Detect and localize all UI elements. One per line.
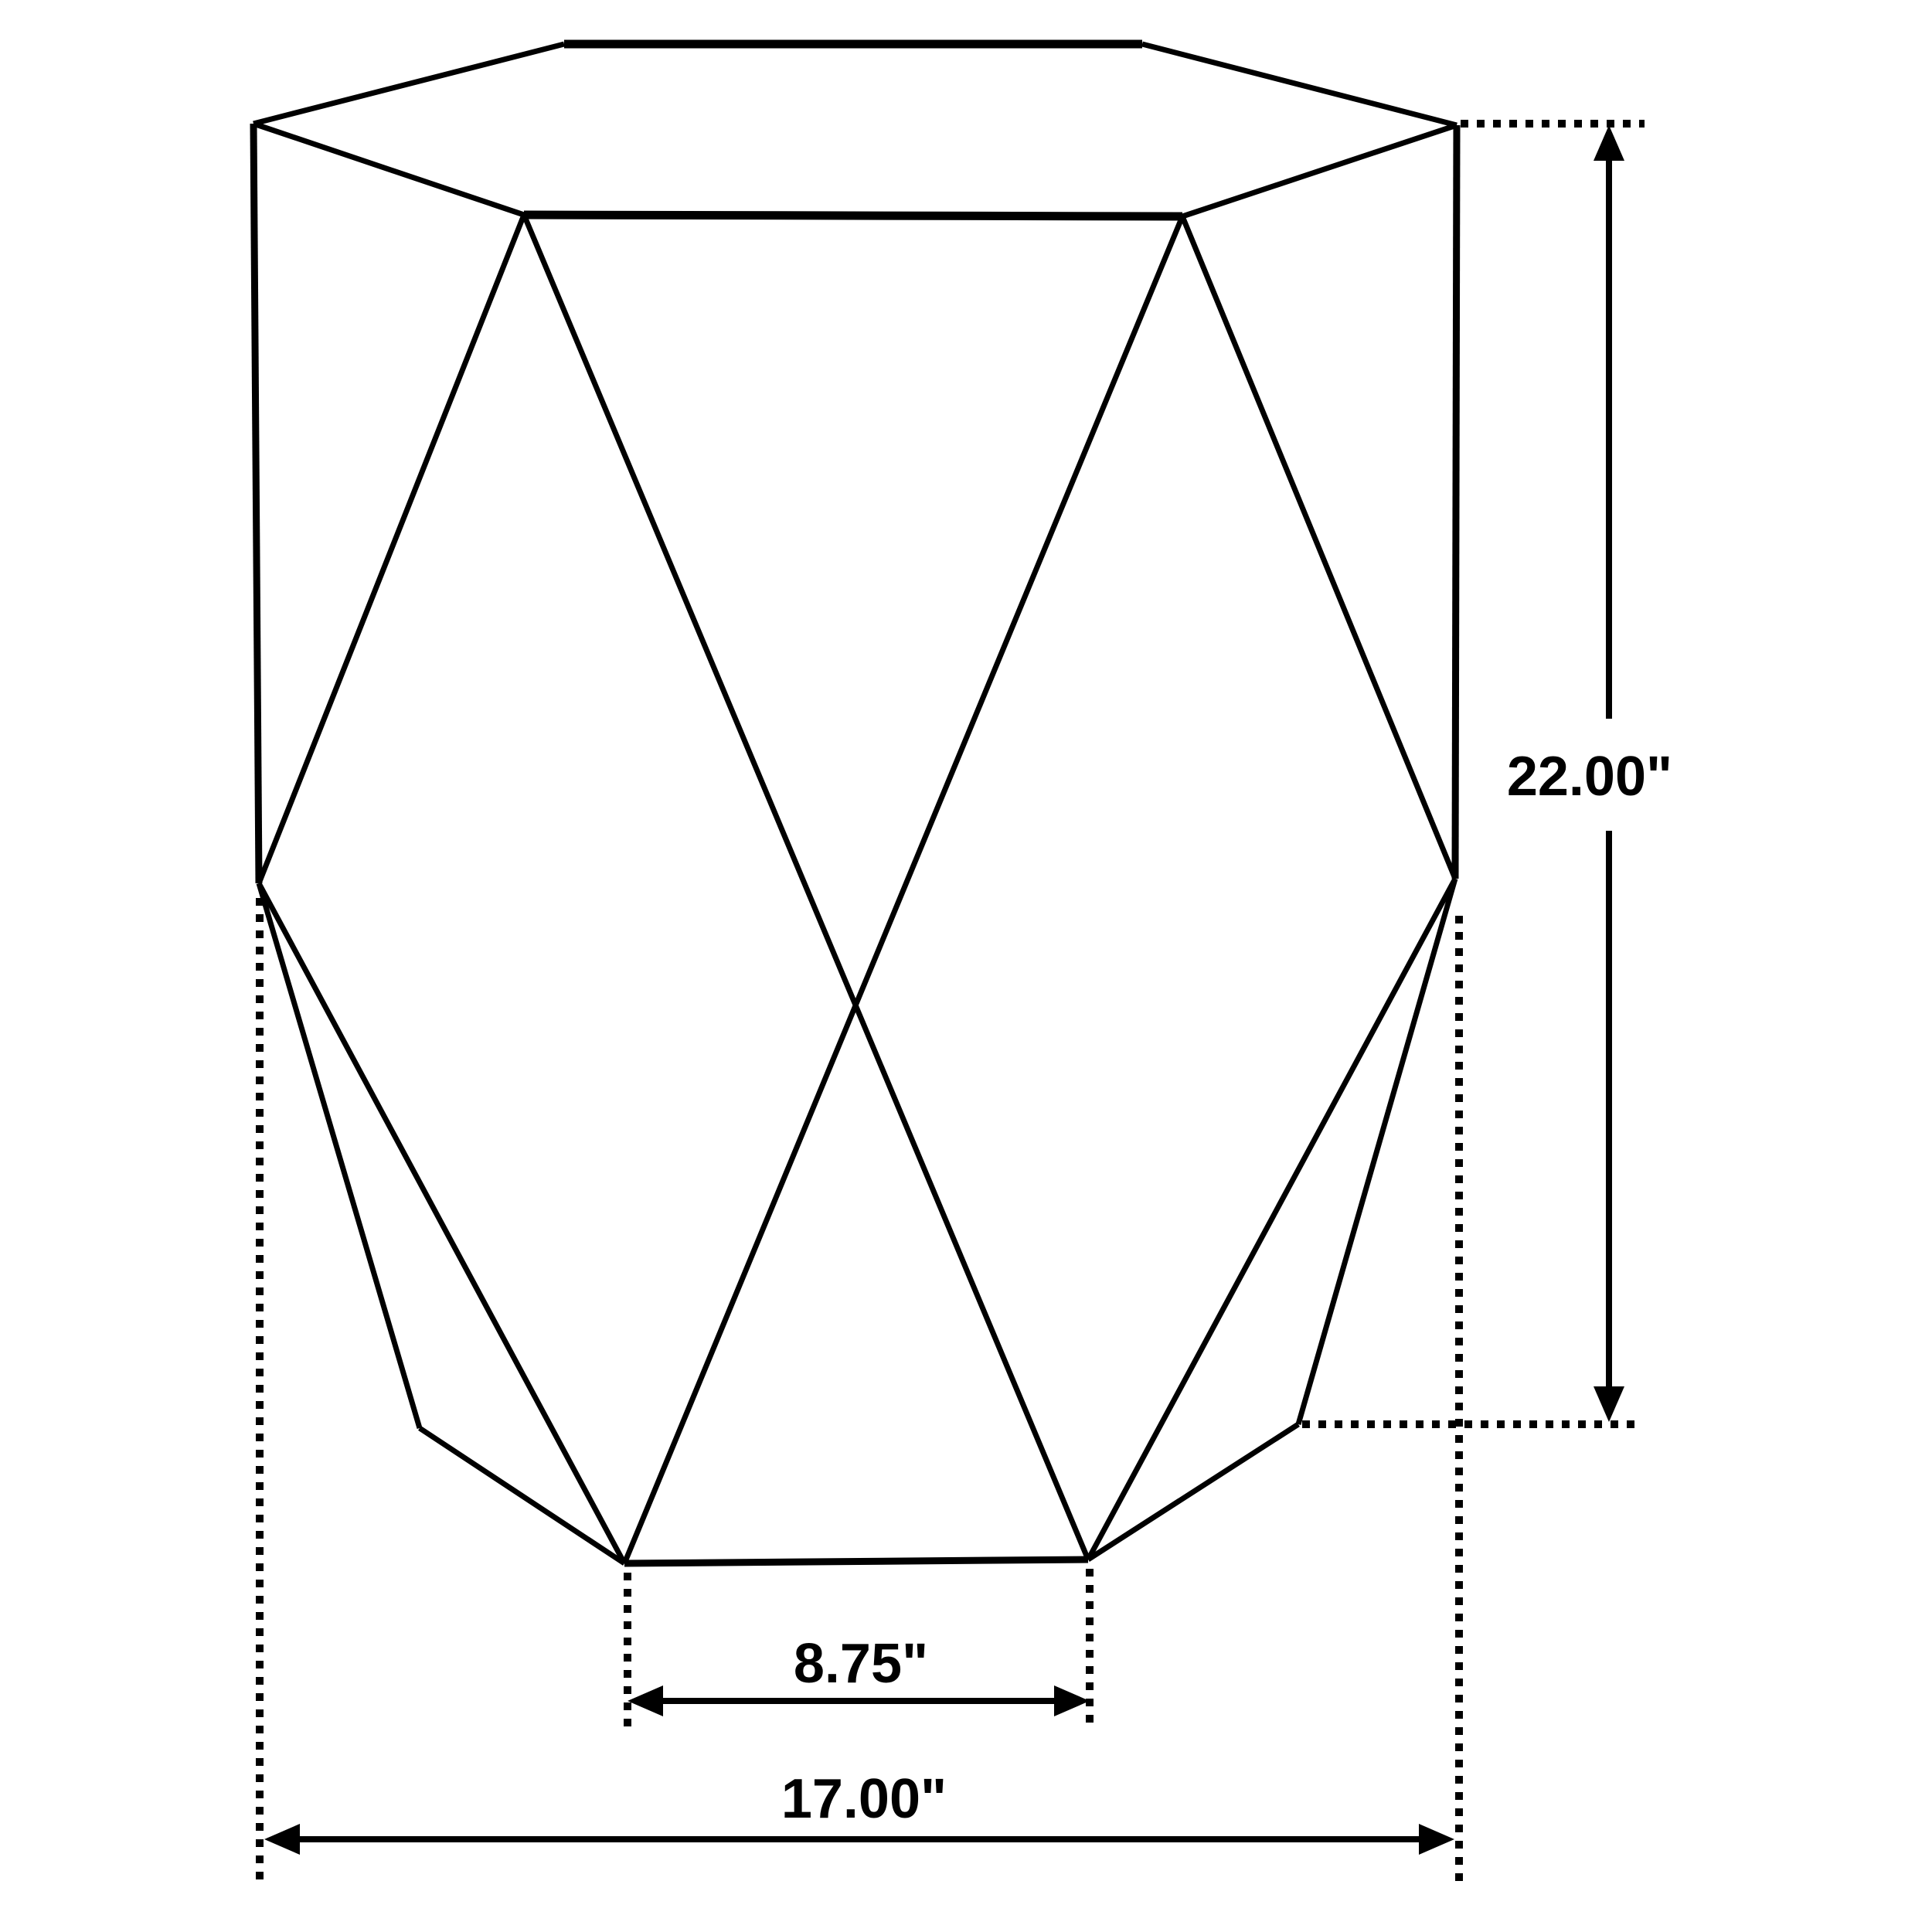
top-face-front-right-edge <box>1182 125 1457 216</box>
dimension-line-base-8-75in-arrow-right <box>1054 1685 1090 1716</box>
dimension-line-width-17in-arrow-left <box>264 1824 300 1855</box>
facet-long-diagonal-left-to-bottom-right <box>524 215 1088 1560</box>
bottom-front-edge <box>624 1560 1088 1563</box>
bottom-right-facet-edge <box>1088 1424 1298 1560</box>
facet-diagonal-front-right-to-mid-right <box>1182 216 1455 879</box>
top-face-front-edge <box>524 215 1182 216</box>
dimension-labels-group: 22.00" 17.00" 8.75" <box>781 746 1672 1830</box>
dimension-drawing-svg: 22.00" 17.00" 8.75" <box>0 0 1932 1932</box>
top-face-back-right-edge <box>1142 44 1457 125</box>
width-dimension-label: 17.00" <box>781 1768 947 1830</box>
facet-diagonal-mid-left-to-bottom-left <box>259 883 624 1563</box>
right-side-vertical-edge <box>1455 125 1457 879</box>
dimension-line-width-17in-arrow-right <box>1419 1824 1454 1855</box>
bottom-left-facet-edge <box>420 1428 624 1563</box>
base-dimension-label: 8.75" <box>794 1633 928 1695</box>
dimension-extension-lines-group <box>260 124 1645 1884</box>
table-outline-group <box>253 44 1457 1563</box>
furniture-dimension-diagram: 22.00" 17.00" 8.75" <box>0 0 1932 1932</box>
top-face-front-left-edge <box>253 124 524 215</box>
lower-left-silhouette-edge <box>259 883 420 1428</box>
dimension-line-base-8-75in-arrow-left <box>628 1685 663 1716</box>
top-face-back-left-edge <box>253 44 564 124</box>
dimension-line-height-22in-arrow-down <box>1594 1386 1624 1422</box>
facet-diagonal-front-left-to-mid-left <box>259 215 524 883</box>
facet-diagonal-mid-right-to-bottom-right <box>1088 879 1455 1560</box>
lower-right-silhouette-edge <box>1298 879 1455 1424</box>
facet-long-diagonal-right-to-bottom-left <box>624 216 1182 1563</box>
height-dimension-label: 22.00" <box>1507 746 1672 808</box>
left-side-vertical-edge <box>253 124 259 883</box>
dimension-line-height-22in-arrow-up <box>1594 125 1624 161</box>
